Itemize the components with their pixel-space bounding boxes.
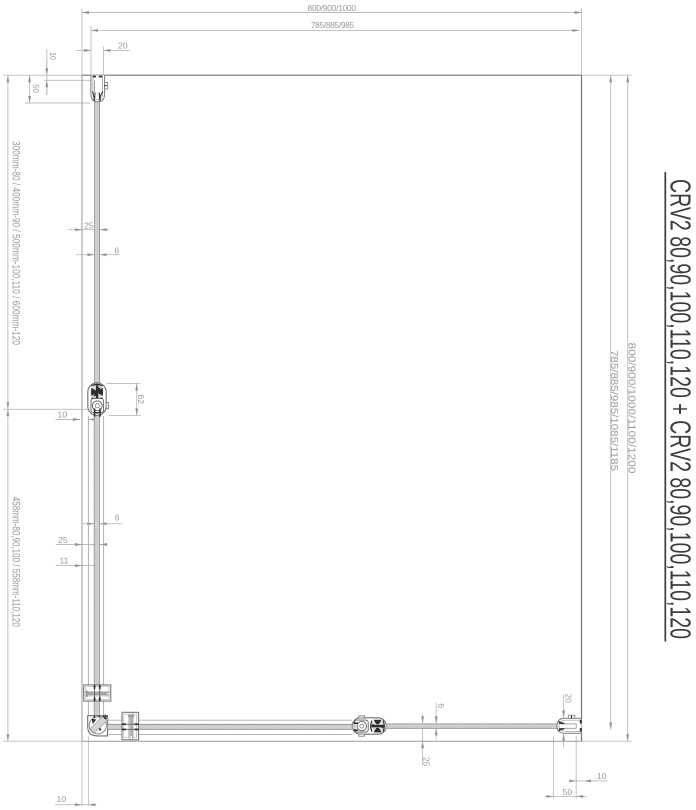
svg-text:20: 20 — [563, 694, 573, 704]
svg-text:6: 6 — [436, 703, 446, 708]
svg-text:50: 50 — [31, 84, 41, 93]
svg-text:50: 50 — [563, 787, 573, 797]
svg-text:10: 10 — [597, 771, 607, 781]
svg-text:800/900/1000/1100/1200: 800/900/1000/1100/1200 — [626, 343, 638, 474]
svg-text:20: 20 — [118, 40, 128, 50]
svg-text:11: 11 — [60, 556, 69, 566]
svg-text:10: 10 — [58, 410, 68, 420]
svg-text:6: 6 — [114, 246, 119, 256]
svg-text:25: 25 — [84, 220, 94, 230]
svg-text:800/900/1000: 800/900/1000 — [308, 3, 357, 13]
svg-text:25: 25 — [58, 535, 68, 545]
svg-text:6: 6 — [115, 513, 120, 523]
svg-text:10: 10 — [57, 794, 67, 804]
svg-text:785/885/985: 785/885/985 — [311, 20, 355, 30]
svg-text:300mm-80 / 400mm-90 / 500mm-10: 300mm-80 / 400mm-90 / 500mm-100,110 / 60… — [10, 141, 22, 345]
svg-text:25: 25 — [422, 757, 432, 767]
svg-text:62: 62 — [136, 395, 146, 405]
svg-text:458mm-80,90,100 / 558mm-110,12: 458mm-80,90,100 / 558mm-110,120 — [10, 497, 22, 627]
svg-text:785/885/985/1085/1185: 785/885/985/1085/1185 — [608, 350, 620, 471]
svg-text:10: 10 — [48, 52, 58, 60]
svg-text:CRV2 80,90,100,110,120 + CRV2: CRV2 80,90,100,110,120 + CRV2 80,90,100,… — [663, 179, 695, 639]
